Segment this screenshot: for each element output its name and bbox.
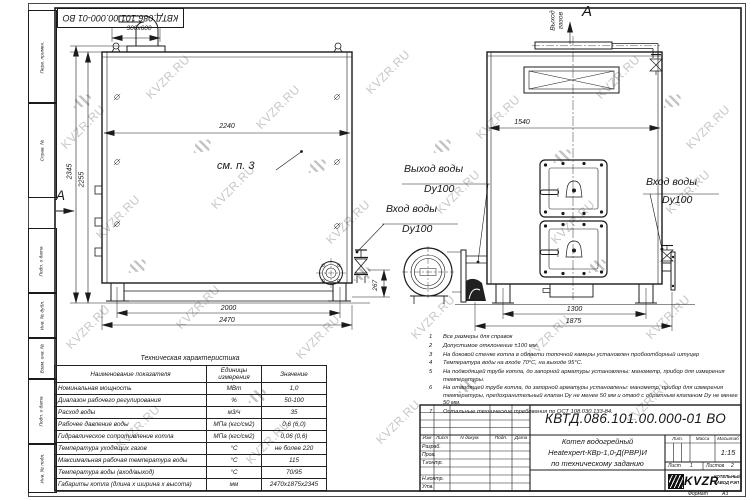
staff-razrab: Разраб. (422, 445, 441, 450)
side-view-dimensions (70, 28, 390, 330)
tech-cell-unit: °С (207, 455, 262, 467)
tech-cell-name: Максимальная рабочая температура воды (55, 455, 207, 467)
note-text: Температура воды на входе 70°С, на выход… (443, 360, 739, 367)
tech-cell-name: Температура уходящих газов (55, 443, 207, 455)
tech-cell-unit: мм (207, 479, 262, 491)
rev-header-podp: Подп. (490, 437, 512, 442)
dim-side-height-body: 2255 (79, 165, 86, 195)
gas-outlet-label: Выход газов (549, 7, 564, 35)
tech-cell-name: Диапазон рабочего регулирования (55, 395, 207, 407)
tech-header-value: Значение (262, 366, 327, 383)
tech-table-title: Техническая характеристика (54, 355, 326, 362)
front-view-dimensions (475, 128, 672, 331)
water-outlet-label: Выход воды (404, 164, 463, 175)
ash-drawer (550, 284, 593, 297)
dim-side-base: 2000 (199, 305, 259, 312)
table-row: Температура уходящих газов°Сне более 220 (55, 443, 327, 455)
tech-cell-name: Температура воды (вход/выход) (55, 467, 207, 479)
lit-label: Лит. (665, 437, 690, 442)
staff-utv: Утв. (422, 485, 434, 490)
tech-cell-name: Габариты котла (длина х ширина х высота) (55, 479, 207, 491)
section-a-marker: А (56, 189, 65, 203)
note-number: 5 (429, 369, 443, 383)
scale-label: Масштаб (715, 437, 741, 442)
tech-cell-value: 0,6 (6,0) (262, 419, 327, 431)
water-inlet-mid-label: Вход воды (386, 204, 437, 215)
dim-valve-offset: 267 (373, 271, 380, 299)
tech-cell-unit: МПа (кгс/см2) (207, 431, 262, 443)
dim-front-width: 1540 (498, 119, 546, 126)
note-text: Допустимое отклонение ±100 мм. (443, 343, 739, 350)
tech-cell-value: 115 (262, 455, 327, 467)
roof-pipe (532, 42, 662, 75)
sheet-value: 1 (690, 464, 693, 469)
frame-column-vzam-inv: Взам. инв. № (28, 337, 57, 380)
staff-nkontr: Н.контр. (422, 477, 444, 482)
tech-table: Наименование показателя Единицы измерени… (54, 365, 327, 491)
table-row: Рабочее давление водыМПа (кгс/см2)0,6 (6… (55, 419, 327, 431)
frame-column-label: Подп. и дата (40, 396, 45, 426)
tech-header-name: Наименование показателя (55, 366, 207, 383)
dim-front-overall: 1875 (544, 318, 604, 325)
staff-prov: Пров. (422, 453, 436, 458)
table-row: Номинальная мощностьМВт1,0 (55, 383, 327, 395)
list-item: 5На подводящей трубе котла, до запорной … (429, 369, 741, 383)
rev-header-list: Лист (434, 437, 450, 442)
note-number: 4 (429, 360, 443, 367)
frame-column-inv-podl: Инв. № подл. (28, 443, 57, 493)
note-text: На подводящей трубе котла, до запорной а… (443, 369, 739, 383)
tech-cell-value: 1,0 (262, 383, 327, 395)
tech-cell-unit: м3/ч (207, 407, 262, 419)
sheets-label: Листов (706, 464, 724, 469)
note-text: На боковой стенке котла в области топочн… (443, 352, 739, 359)
tech-cell-value: 35 (262, 407, 327, 419)
product-name-line3: по техническому заданию (532, 460, 663, 468)
scale-value: 1:15 (715, 449, 741, 457)
staff-tkontr: Т.контр. (422, 461, 443, 466)
table-row: Расход водым3/ч35 (55, 407, 327, 419)
frame-column-label: Справ. № (40, 139, 45, 161)
mass-label: Масса (690, 437, 715, 442)
table-row: Температура воды (вход/выход)°С70/95 (55, 467, 327, 479)
note-number: 7 (429, 409, 443, 416)
note-number: 6 (429, 385, 443, 407)
list-item: 2Допустимое отклонение ±100 мм. (429, 343, 741, 350)
tech-cell-name: Рабочее давление воды (55, 419, 207, 431)
dim-duct-size: 300x600 (116, 26, 162, 33)
rev-header-data: Дата (512, 437, 530, 442)
tech-cell-unit: МВт (207, 383, 262, 395)
door-handle (541, 250, 559, 255)
inlet-fitting (661, 246, 675, 291)
water-inlet-right-dn-label: Dy100 (662, 195, 692, 206)
list-item: 6На отводящей трубе котла, до запорной а… (429, 385, 741, 407)
frame-column-label: Подп. и дата (40, 246, 45, 276)
note-number: 3 (429, 352, 443, 359)
list-item: 1Все размеры для справок (429, 334, 741, 341)
title-block-designation: КВТД.086.101.00.000-01 ВО (532, 411, 739, 426)
product-name-line1: Котел водогрейный (532, 438, 663, 446)
note-number: 2 (429, 343, 443, 350)
door-handle (541, 190, 559, 195)
tech-cell-unit: % (207, 395, 262, 407)
frame-column-sprav: Справ. № (28, 102, 57, 198)
frame-column-perv-primen: Перв. примен. (28, 10, 57, 104)
tech-cell-value: не более 220 (262, 443, 327, 455)
note-text: Все размеры для справок (443, 334, 739, 341)
tech-cell-value: 0,06 (0,6) (262, 431, 327, 443)
dim-side-overall: 2470 (197, 317, 257, 324)
water-inlet-right-label: Вход воды (646, 177, 697, 188)
kvzr-logo-icon (668, 474, 684, 489)
tech-cell-value: 50-100 (262, 395, 327, 407)
gas-outlet-line2: газов (557, 7, 565, 35)
tech-cell-unit: °С (207, 443, 262, 455)
sheets-value: 2 (731, 464, 734, 469)
notes-list: 1Все размеры для справок 2Допустимое отк… (429, 334, 741, 418)
see-note-label: см. п. 3 (217, 161, 254, 172)
valve-icon (354, 250, 368, 283)
frame-column-label: Взам. инв. № (40, 344, 45, 374)
frame-column-podp-data-2: Подп. и дата (28, 378, 57, 445)
boiler-side-view (56, 16, 390, 330)
tech-cell-name: Номинальная мощность (55, 383, 207, 395)
format-value: А3 (722, 492, 728, 497)
upper-door (540, 160, 607, 217)
frame-column-podp-data-1: Подп. и дата (28, 228, 57, 294)
company-name-line2: ЗАВОД РЭП (714, 481, 739, 485)
company-name-line1: КОТЕЛЬНЫЙ (714, 475, 741, 479)
view-a-title: А (582, 4, 592, 19)
gas-outlet-line1: Выход (549, 7, 557, 35)
table-row: Максимальная рабочая температура воды°С1… (55, 455, 327, 467)
drawing-sheet: KVZR.RU KVZR.RU KVZR.RU KVZR.RU KVZR.RU … (0, 0, 750, 500)
frame-column-label: Инв. № подл. (40, 453, 45, 483)
rotated-designation-text: КВТД.086.101.00.000-01 ВО (63, 14, 179, 23)
blower-fan (402, 246, 487, 304)
tech-cell-name: Расход воды (55, 407, 207, 419)
frame-column-label: Перв. примен. (40, 41, 45, 73)
frame-column-label: Инв. № дубл. (40, 301, 45, 331)
table-row: Диапазон рабочего регулирования%50-100 (55, 395, 327, 407)
product-name-line2: Heatexpert-КВр-1,0-Д(РВР)И (530, 449, 665, 457)
tech-header-unit: Единицы измерения (207, 366, 262, 383)
frame-column-inv-dubl: Инв. № дубл. (28, 292, 57, 339)
list-item: 4Температура воды на входе 70°С, на выхо… (429, 360, 741, 367)
tech-cell-unit: МПа (кгс/см2) (207, 419, 262, 431)
tech-cell-unit: °С (207, 467, 262, 479)
dim-front-base: 1300 (545, 306, 605, 313)
tech-cell-value: 70/95 (262, 467, 327, 479)
tech-cell-name: Гидравлическое сопротивление котла (55, 431, 207, 443)
lower-door (540, 221, 607, 277)
rev-header-doc: N докум. (450, 437, 490, 442)
rev-header-izm: Изм (420, 437, 434, 442)
sheet-label: Лист (668, 464, 681, 469)
list-item: 3На боковой стенке котла в области топоч… (429, 352, 741, 359)
explosion-hatch (524, 67, 619, 93)
dim-side-top-width: 2240 (200, 123, 254, 130)
water-inlet-mid-dn-label: Dy100 (402, 224, 432, 235)
note-number: 1 (429, 334, 443, 341)
format-label: Формат (688, 492, 708, 497)
note-text: На отводящей трубе котла, до запорной ар… (443, 385, 739, 407)
dim-side-height-overall: 2345 (67, 157, 74, 187)
water-outlet-dn-label: Dy100 (424, 184, 454, 195)
tech-cell-value: 2470х1875х2345 (262, 479, 327, 491)
table-row: Гидравлическое сопротивление котлаМПа (к… (55, 431, 327, 443)
table-row: Габариты котла (длина х ширина х высота)… (55, 479, 327, 491)
